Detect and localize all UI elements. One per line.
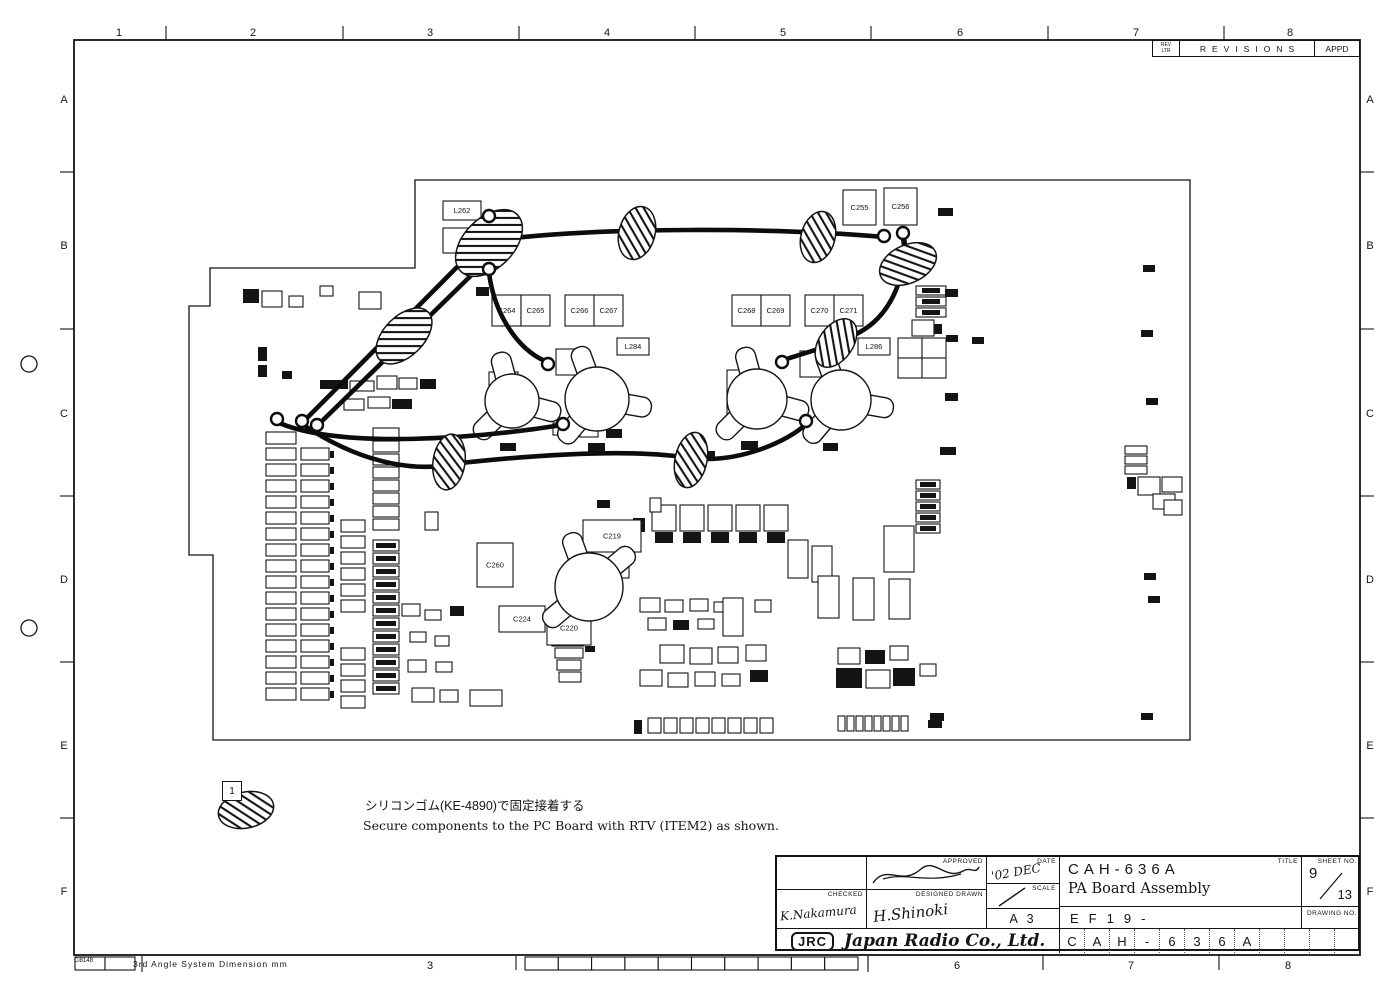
- component-box: [665, 600, 683, 612]
- component-pad: [450, 606, 464, 616]
- engineering-drawing-sheet: 123456783678AABBCCDDEEFFL262C263C255C256…: [0, 0, 1400, 989]
- component-box: [744, 718, 757, 733]
- scale-strip-cell: [105, 957, 135, 970]
- column-number-bottom: 8: [1285, 960, 1291, 972]
- component-box: [301, 496, 329, 508]
- date-value: '02 DEC: [990, 861, 1042, 883]
- component-pad: [376, 634, 396, 639]
- component-box: [874, 716, 881, 731]
- component-box: [708, 505, 732, 531]
- component-box: [912, 320, 934, 336]
- component-box: [696, 718, 709, 733]
- component-box: [436, 662, 452, 672]
- component-box: [922, 358, 946, 378]
- component-pad: [673, 620, 689, 630]
- component-pad: [1127, 477, 1136, 489]
- component-box: [555, 648, 583, 658]
- component-reference-label: C256: [892, 202, 910, 211]
- component-box: [922, 338, 946, 358]
- column-number-top: 6: [957, 27, 963, 39]
- column-number-top: 8: [1287, 27, 1293, 39]
- checked-signature: K.Nakamura: [780, 903, 858, 924]
- registration-hole: [21, 620, 37, 636]
- approved-signature: [869, 859, 981, 889]
- scale-label: SCALE: [1032, 885, 1056, 892]
- component-pad: [1146, 398, 1158, 405]
- component-pad: [865, 650, 885, 664]
- component-box: [320, 286, 333, 296]
- component-pad: [946, 335, 958, 342]
- component-box: [660, 645, 684, 663]
- component-pad: [258, 365, 267, 377]
- column-number-bottom: 3: [427, 960, 433, 972]
- product-title: PA Board Assembly: [1060, 878, 1301, 897]
- component-pad: [330, 627, 334, 634]
- transistor-body: [811, 370, 871, 430]
- component-box: [341, 600, 365, 612]
- component-box: [301, 576, 329, 588]
- row-letter-left: E: [60, 740, 67, 752]
- component-box: [640, 598, 660, 612]
- projection-note: 3rd Angle System Dimension mm: [133, 959, 288, 969]
- component-box: [373, 467, 399, 478]
- component-box: [266, 432, 296, 444]
- component-pad: [330, 531, 334, 538]
- component-pad: [920, 526, 936, 531]
- solder-terminal: [311, 419, 323, 431]
- component-pad: [500, 443, 516, 451]
- drawing-number-row: CAH-636A: [1060, 929, 1359, 953]
- component-box: [788, 540, 808, 578]
- row-letter-left: F: [61, 886, 68, 898]
- component-box: [1125, 456, 1147, 464]
- drawing-number-char: A: [1084, 929, 1109, 953]
- component-box: [853, 578, 874, 620]
- solder-terminal: [557, 418, 569, 430]
- component-box: [892, 716, 899, 731]
- scale-strip-cell: [558, 957, 591, 970]
- component-pad: [282, 371, 292, 379]
- component-pad: [376, 647, 396, 652]
- company-name: Japan Radio Co., Ltd.: [844, 931, 1045, 951]
- drawing-canvas: 123456783678AABBCCDDEEFFL262C263C255C256…: [0, 0, 1400, 989]
- component-pad: [836, 668, 862, 688]
- component-box: [698, 619, 714, 629]
- component-pad: [1141, 330, 1153, 337]
- component-box: [266, 464, 296, 476]
- component-pad: [330, 467, 334, 474]
- row-letter-right: C: [1366, 408, 1374, 420]
- sheet-no-cell: SHEET NO. 9 13: [1302, 857, 1360, 907]
- component-box: [266, 480, 296, 492]
- jrc-logo: JRC: [791, 932, 834, 951]
- component-box: [301, 512, 329, 524]
- component-box: [301, 608, 329, 620]
- component-box: [301, 592, 329, 604]
- component-box: [373, 519, 399, 530]
- component-box: [1138, 477, 1160, 495]
- revisions-title: REVISIONS: [1180, 41, 1314, 56]
- component-box: [266, 528, 296, 540]
- revisions-header: REV LTR REVISIONS APPD: [1152, 40, 1360, 57]
- component-pad: [476, 287, 489, 296]
- scale-strip-cell: [525, 957, 558, 970]
- drawing-number-char: [1259, 929, 1284, 953]
- component-reference-label: C219: [603, 532, 621, 541]
- component-pad: [922, 288, 940, 293]
- paper-size: A 3: [987, 909, 1059, 928]
- paper-size-cell: A 3: [987, 909, 1060, 929]
- scale-slash: [993, 886, 1033, 908]
- component-pad: [922, 310, 940, 315]
- row-letter-left: C: [60, 408, 68, 420]
- component-box: [889, 579, 910, 619]
- component-pad: [376, 608, 396, 613]
- component-reference-label: L286: [866, 342, 883, 351]
- component-box: [408, 660, 426, 672]
- component-box: [650, 498, 661, 512]
- component-box: [341, 552, 365, 564]
- drawing-number-cells: CAH-636A: [1060, 929, 1359, 953]
- component-pad: [376, 686, 396, 691]
- component-box: [866, 670, 890, 688]
- solder-terminal: [800, 415, 812, 427]
- component-box: [760, 718, 773, 733]
- component-box: [266, 544, 296, 556]
- component-reference-label: C268: [738, 306, 756, 315]
- component-pad: [823, 443, 838, 451]
- component-box: [266, 672, 296, 684]
- component-pad: [330, 691, 334, 698]
- component-box: [373, 441, 399, 452]
- title-area-cell: TITLE CAH-636A PA Board Assembly: [1060, 857, 1302, 907]
- component-pad: [330, 547, 334, 554]
- component-box: [373, 506, 399, 517]
- row-letter-right: E: [1366, 740, 1373, 752]
- component-box: [920, 664, 936, 676]
- component-box: [344, 399, 364, 410]
- component-reference-label: C270: [811, 306, 829, 315]
- rtv-adhesive-blob: [795, 207, 841, 266]
- component-box: [755, 600, 771, 612]
- solder-terminal: [483, 210, 495, 222]
- approved-cell: APPROVED: [867, 857, 987, 890]
- component-pad: [945, 289, 958, 297]
- component-box: [266, 656, 296, 668]
- solder-terminal: [296, 415, 308, 427]
- component-pad: [893, 668, 915, 686]
- component-pad: [945, 393, 958, 401]
- row-letter-left: B: [60, 240, 67, 252]
- note-text-english: Secure components to the PC Board with R…: [363, 818, 779, 833]
- scale-strip-cell: [592, 957, 625, 970]
- component-box: [884, 526, 914, 572]
- component-pad: [920, 515, 936, 520]
- company-cell: JRC Japan Radio Co., Ltd.: [777, 929, 1060, 953]
- appd-cell: APPD: [1314, 41, 1359, 56]
- component-pad: [920, 493, 936, 498]
- component-box: [764, 505, 788, 531]
- drawing-number-char: C: [1060, 929, 1084, 953]
- component-box: [865, 716, 872, 731]
- component-pad: [376, 556, 396, 561]
- rev-ltr-cell: REV LTR: [1153, 41, 1180, 56]
- component-pad: [376, 569, 396, 574]
- component-pad: [750, 670, 768, 682]
- component-box: [838, 716, 845, 731]
- component-box: [640, 670, 662, 686]
- scale-strip-cell: [658, 957, 691, 970]
- component-box: [668, 673, 688, 687]
- component-box: [559, 672, 581, 682]
- drawing-no-label: DRAWING NO.: [1307, 910, 1357, 917]
- component-box: [359, 292, 381, 309]
- blank-cell: [777, 857, 867, 890]
- component-box: [266, 448, 296, 460]
- component-box: [377, 376, 397, 389]
- component-pad: [330, 643, 334, 650]
- component-box: [898, 338, 922, 358]
- column-number-top: 5: [780, 27, 786, 39]
- model-number: CAH-636A: [1060, 857, 1301, 878]
- component-box: [680, 718, 693, 733]
- component-pad: [606, 429, 622, 438]
- component-reference-label: C220: [560, 624, 578, 633]
- component-box: [301, 480, 329, 492]
- component-pad: [920, 482, 936, 487]
- component-pad: [330, 659, 334, 666]
- component-pad: [597, 500, 610, 508]
- component-box: [470, 690, 502, 706]
- column-number-bottom: 7: [1128, 960, 1134, 972]
- designed-signature: H.Shinoki: [872, 900, 949, 926]
- rtv-adhesive-blob: [670, 429, 713, 490]
- component-pad: [376, 621, 396, 626]
- code-prefix: EF19-: [1060, 907, 1301, 926]
- row-letter-left: D: [60, 574, 68, 586]
- component-box: [901, 716, 908, 731]
- component-box: [736, 505, 760, 531]
- transistor-body: [555, 553, 623, 621]
- component-reference-label: C266: [571, 306, 589, 315]
- drawing-number-char: 6: [1159, 929, 1184, 953]
- component-box: [1162, 477, 1182, 492]
- component-pad: [330, 611, 334, 618]
- solder-terminal: [542, 358, 554, 370]
- component-box: [746, 645, 766, 661]
- component-pad: [1148, 596, 1160, 603]
- component-box: [890, 646, 908, 660]
- component-box: [301, 560, 329, 572]
- scale-cell: SCALE: [987, 884, 1060, 909]
- component-box: [266, 608, 296, 620]
- component-box: [557, 660, 581, 670]
- title-block: APPROVED CHECKED K.Nakamura DESIGNED DRA…: [775, 855, 1360, 951]
- component-box: [690, 599, 708, 611]
- component-box: [410, 632, 426, 642]
- component-box: [1125, 466, 1147, 474]
- component-box: [1125, 446, 1147, 454]
- component-box: [301, 448, 329, 460]
- component-reference-label: C255: [851, 203, 869, 212]
- component-box: [266, 592, 296, 604]
- checked-label: CHECKED: [828, 891, 863, 898]
- component-box: [435, 636, 449, 646]
- component-reference-label: C267: [600, 306, 618, 315]
- component-box: [341, 664, 365, 676]
- component-box: [341, 568, 365, 580]
- component-box: [1164, 500, 1182, 515]
- component-reference-label: L262: [454, 206, 471, 215]
- component-box: [301, 624, 329, 636]
- component-pad: [1141, 713, 1153, 720]
- component-box: [695, 672, 715, 686]
- transistor-body: [727, 369, 787, 429]
- component-pad: [330, 675, 334, 682]
- component-box: [341, 696, 365, 708]
- row-letter-right: A: [1366, 94, 1374, 106]
- scale-strip-cell: [625, 957, 658, 970]
- date-cell: DATE '02 DEC: [987, 857, 1060, 884]
- scale-strip-cell: [825, 957, 858, 970]
- component-pad: [330, 483, 334, 490]
- rtv-adhesive-blob: [613, 202, 662, 263]
- component-pad: [938, 208, 953, 216]
- solder-terminal: [897, 227, 909, 239]
- component-pad: [767, 532, 785, 543]
- component-pad: [920, 504, 936, 509]
- component-pad: [683, 532, 701, 543]
- component-box: [664, 718, 677, 733]
- component-box: [266, 496, 296, 508]
- form-code: Ci8148: [74, 958, 93, 964]
- component-pad: [739, 532, 757, 543]
- component-pad: [330, 515, 334, 522]
- component-box: [648, 618, 666, 630]
- component-pad: [330, 595, 334, 602]
- component-reference-label: C224: [513, 615, 531, 624]
- column-number-top: 1: [116, 27, 122, 39]
- column-number-top: 4: [604, 27, 610, 39]
- component-pad: [1144, 573, 1156, 580]
- component-box: [266, 624, 296, 636]
- component-box: [648, 718, 661, 733]
- component-box: [722, 674, 740, 686]
- scale-strip-cell: [758, 957, 791, 970]
- row-letter-left: A: [60, 94, 68, 106]
- component-box: [301, 528, 329, 540]
- component-pad: [634, 720, 642, 734]
- component-pad: [330, 499, 334, 506]
- component-pad: [585, 646, 595, 652]
- component-box: [368, 397, 390, 408]
- component-box: [690, 648, 712, 664]
- component-box: [440, 690, 458, 702]
- component-box: [425, 610, 441, 620]
- note-text-japanese: シリコンゴム(KE-4890)で固定接着する: [365, 795, 584, 814]
- component-box: [301, 688, 329, 700]
- component-pad: [392, 399, 412, 409]
- drawing-number-char: [1284, 929, 1309, 953]
- checked-cell: CHECKED K.Nakamura: [777, 890, 867, 929]
- component-box: [883, 716, 890, 731]
- component-box: [680, 505, 704, 531]
- column-number-top: 2: [250, 27, 256, 39]
- row-letter-right: F: [1367, 886, 1374, 898]
- component-pad: [243, 289, 259, 303]
- component-box: [341, 520, 365, 532]
- component-pad: [376, 660, 396, 665]
- component-reference-label: C271: [840, 306, 858, 315]
- solder-terminal: [483, 263, 495, 275]
- component-pad: [711, 532, 729, 543]
- component-pad: [655, 532, 673, 543]
- component-reference-label: C265: [527, 306, 545, 315]
- component-box: [341, 584, 365, 596]
- component-pad: [420, 379, 436, 389]
- rtv-adhesive-blob: [429, 432, 468, 492]
- drawing-no-label-cell: DRAWING NO.: [1302, 907, 1360, 929]
- component-box: [718, 647, 738, 663]
- component-box: [289, 296, 303, 307]
- component-box: [266, 512, 296, 524]
- component-pad: [1143, 265, 1155, 272]
- component-pad: [376, 673, 396, 678]
- component-box: [373, 480, 399, 491]
- designed-drawn-cell: DESIGNED DRAWN H.Shinoki: [867, 890, 987, 929]
- component-pad: [972, 337, 984, 344]
- component-box: [301, 640, 329, 652]
- component-box: [898, 358, 922, 378]
- rev-ltr-line2: LTR: [1161, 49, 1170, 55]
- component-pad: [934, 324, 942, 334]
- component-box: [341, 648, 365, 660]
- drawing-number-char: 6: [1209, 929, 1234, 953]
- drawing-number-char: H: [1109, 929, 1134, 953]
- component-pad: [376, 543, 396, 548]
- component-box: [341, 680, 365, 692]
- component-box: [402, 604, 420, 616]
- component-box: [838, 648, 860, 664]
- component-box: [412, 688, 434, 702]
- component-pad: [330, 451, 334, 458]
- solder-terminal: [776, 356, 788, 368]
- designed-drawn-label: DESIGNED DRAWN: [916, 891, 983, 898]
- drawing-number-char: A: [1234, 929, 1259, 953]
- solder-terminal: [878, 230, 890, 242]
- component-reference-label: L284: [625, 342, 642, 351]
- row-letter-right: B: [1366, 240, 1373, 252]
- component-box: [262, 291, 282, 307]
- component-pad: [376, 595, 396, 600]
- component-box: [301, 464, 329, 476]
- component-box: [856, 716, 863, 731]
- component-pad: [330, 579, 334, 586]
- component-box: [399, 378, 417, 389]
- code-prefix-cell: EF19-: [1060, 907, 1302, 929]
- component-box: [712, 718, 725, 733]
- component-pad: [928, 720, 942, 728]
- component-box: [301, 672, 329, 684]
- transistor-body: [565, 367, 629, 431]
- component-pad: [330, 563, 334, 570]
- component-box: [728, 718, 741, 733]
- component-box: [266, 688, 296, 700]
- component-box: [373, 493, 399, 504]
- column-number-top: 7: [1133, 27, 1139, 39]
- component-box: [266, 560, 296, 572]
- registration-hole: [21, 356, 37, 372]
